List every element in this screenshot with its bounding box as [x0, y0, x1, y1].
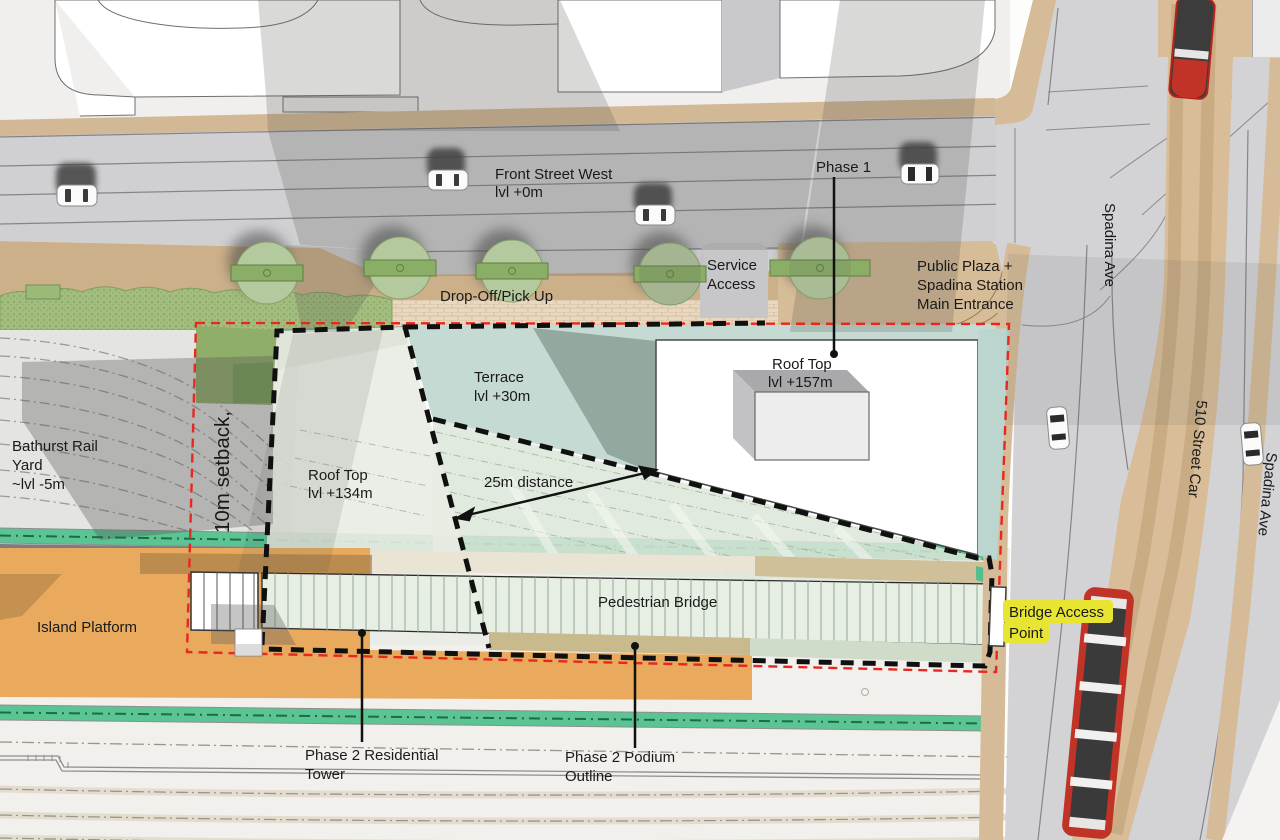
svg-text:Bridge Access: Bridge Access	[1009, 604, 1104, 621]
svg-text:Outline: Outline	[565, 768, 613, 785]
svg-text:Spadina Ave: Spadina Ave	[1101, 203, 1118, 287]
svg-text:Point: Point	[1009, 625, 1044, 642]
svg-text:lvl +157m: lvl +157m	[768, 374, 833, 391]
svg-text:Spadina Station: Spadina Station	[917, 277, 1023, 294]
svg-text:Public Plaza +: Public Plaza +	[917, 258, 1013, 275]
svg-text:Pedestrian Bridge: Pedestrian Bridge	[598, 594, 717, 611]
svg-text:Phase 1: Phase 1	[816, 159, 871, 176]
svg-text:Phase 2 Podium: Phase 2 Podium	[565, 749, 675, 766]
svg-text:Front Street West: Front Street West	[495, 166, 613, 183]
svg-text:lvl +0m: lvl +0m	[495, 184, 543, 201]
svg-text:Drop-Off/Pick Up: Drop-Off/Pick Up	[440, 288, 553, 305]
svg-text:Main Entrance: Main Entrance	[917, 296, 1014, 313]
svg-text:Roof Top: Roof Top	[772, 356, 832, 373]
svg-text:Access: Access	[707, 276, 755, 293]
svg-text:Phase 2 Residential: Phase 2 Residential	[305, 747, 438, 764]
svg-text:10m setback,: 10m setback,	[211, 411, 234, 533]
svg-text:lvl +134m: lvl +134m	[308, 485, 373, 502]
svg-text:Tower: Tower	[305, 766, 345, 783]
svg-text:Bathurst Rail: Bathurst Rail	[12, 438, 98, 455]
svg-text:Roof Top: Roof Top	[308, 467, 368, 484]
svg-text:Terrace: Terrace	[474, 369, 524, 386]
svg-text:~lvl -5m: ~lvl -5m	[12, 476, 65, 493]
svg-text:Service: Service	[707, 257, 757, 274]
svg-text:25m distance: 25m distance	[484, 474, 573, 491]
svg-text:Yard: Yard	[12, 457, 43, 474]
svg-text:lvl +30m: lvl +30m	[474, 388, 530, 405]
svg-text:Island Platform: Island Platform	[37, 619, 137, 636]
